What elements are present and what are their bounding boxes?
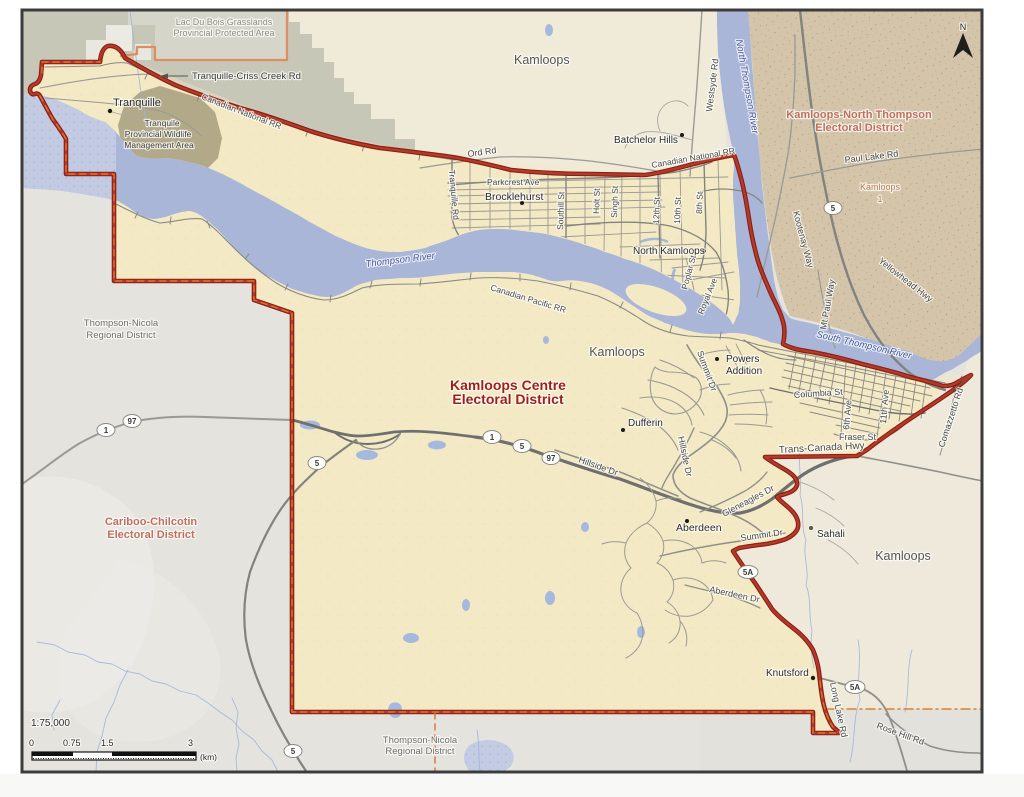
svg-text:Parkcrest Ave: Parkcrest Ave xyxy=(487,177,540,187)
svg-text:97: 97 xyxy=(547,454,556,463)
svg-text:1: 1 xyxy=(104,426,109,435)
svg-text:Thompson-Nicola: Thompson-Nicola xyxy=(383,735,458,746)
svg-text:Dufferin: Dufferin xyxy=(628,418,663,429)
svg-text:5A: 5A xyxy=(850,683,860,692)
svg-text:North Kamloops: North Kamloops xyxy=(633,246,705,257)
svg-text:Regional District: Regional District xyxy=(86,330,156,341)
svg-text:97: 97 xyxy=(128,417,137,426)
svg-text:0: 0 xyxy=(29,738,34,748)
svg-text:(km): (km) xyxy=(200,752,217,762)
svg-text:5A: 5A xyxy=(743,568,753,577)
svg-text:Addition: Addition xyxy=(726,366,762,377)
svg-text:Provincial Protected Area: Provincial Protected Area xyxy=(173,28,274,38)
svg-text:Kamloops: Kamloops xyxy=(589,345,645,359)
svg-text:Tranquille-Criss Creek Rd: Tranquille-Criss Creek Rd xyxy=(192,71,301,82)
svg-text:Thompson-Nicola: Thompson-Nicola xyxy=(84,318,159,329)
svg-text:12th St: 12th St xyxy=(651,196,662,224)
svg-text:0.75: 0.75 xyxy=(63,738,81,748)
svg-text:Lac Du Bois Grasslands: Lac Du Bois Grasslands xyxy=(176,17,273,27)
svg-text:10th St: 10th St xyxy=(672,196,683,224)
svg-text:5: 5 xyxy=(831,204,836,213)
svg-text:Tranquille: Tranquille xyxy=(113,97,161,109)
svg-text:3: 3 xyxy=(188,738,193,748)
svg-text:5: 5 xyxy=(520,442,525,451)
svg-text:Holt St: Holt St xyxy=(591,188,602,214)
svg-text:Tranquile: Tranquile xyxy=(144,118,179,128)
svg-text:Electoral District: Electoral District xyxy=(815,122,903,134)
svg-text:Aberdeen: Aberdeen xyxy=(676,522,722,534)
svg-text:Management Area: Management Area xyxy=(124,140,194,150)
svg-text:Kamloops-North Thompson: Kamloops-North Thompson xyxy=(786,109,932,121)
svg-text:Kamloops: Kamloops xyxy=(860,182,901,192)
svg-text:5: 5 xyxy=(291,747,296,756)
svg-text:1:75,000: 1:75,000 xyxy=(31,718,70,729)
svg-text:Singh St: Singh St xyxy=(609,185,620,218)
svg-text:Electoral District: Electoral District xyxy=(452,391,564,407)
svg-text:Kamloops: Kamloops xyxy=(875,549,931,563)
svg-text:1.5: 1.5 xyxy=(101,738,114,748)
svg-text:Brocklehurst: Brocklehurst xyxy=(485,191,543,203)
svg-text:Southill St: Southill St xyxy=(555,191,566,230)
svg-text:Batchelor Hills: Batchelor Hills xyxy=(614,135,678,146)
svg-text:Electoral District: Electoral District xyxy=(107,529,195,541)
svg-text:8th St: 8th St xyxy=(694,191,705,214)
svg-text:Sahali: Sahali xyxy=(817,529,845,540)
svg-text:N: N xyxy=(960,22,967,32)
svg-text:Cariboo-Chilcotin: Cariboo-Chilcotin xyxy=(105,516,198,528)
svg-text:Provincial Wildlife: Provincial Wildlife xyxy=(125,129,192,139)
svg-text:Kamloops: Kamloops xyxy=(514,53,570,67)
svg-text:Regional District: Regional District xyxy=(385,746,455,757)
svg-text:1: 1 xyxy=(877,194,882,204)
svg-text:5: 5 xyxy=(315,459,320,468)
svg-text:Knutsford: Knutsford xyxy=(766,668,809,679)
svg-text:Powers: Powers xyxy=(726,354,759,365)
svg-text:1: 1 xyxy=(490,433,495,442)
